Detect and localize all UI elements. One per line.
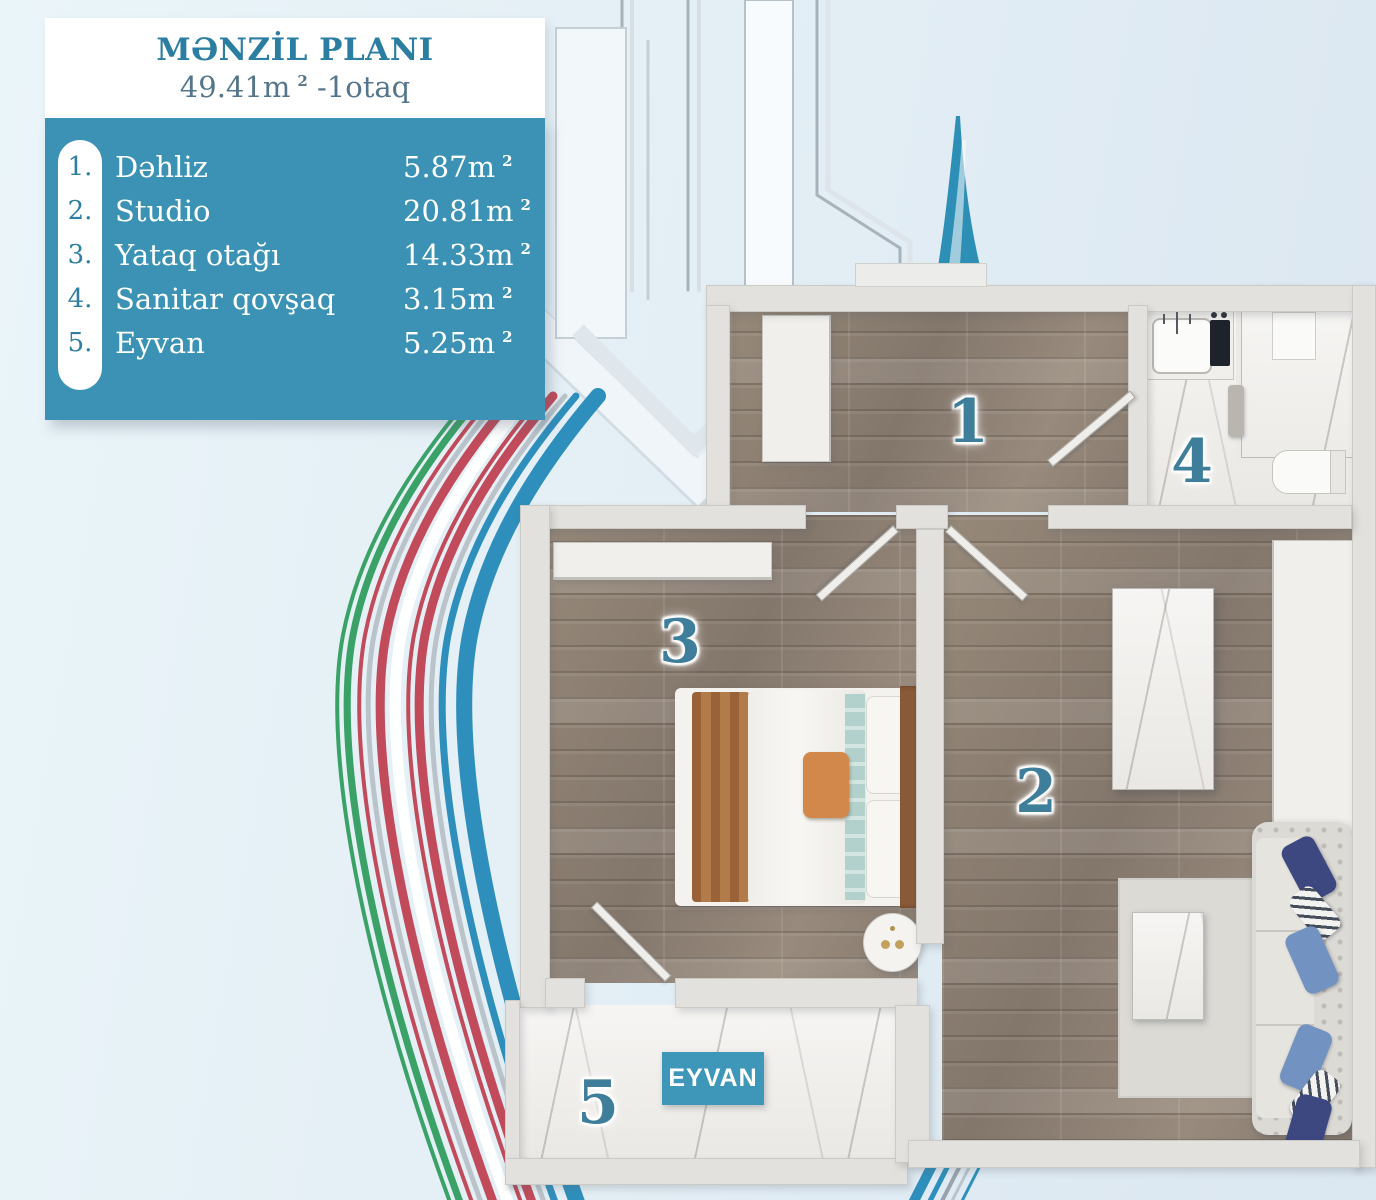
building-outline-graphic — [622, 0, 910, 290]
plan-title: MƏNZİL PLANI — [45, 32, 545, 68]
legend-row: 2. Studio 20.81m2 — [45, 189, 545, 233]
poster-canvas: 1 4 3 2 5 EYVAN MƏNZİL PLANI 49.41m2 -1o… — [0, 0, 1376, 1200]
total-area-sup: 2 — [297, 72, 307, 90]
legend-row-number: 5. — [58, 321, 102, 365]
legend-row-area: 5.25m2 — [403, 321, 513, 370]
wall-mid-left — [520, 505, 806, 529]
legend-row-number: 3. — [58, 233, 102, 277]
legend-row-area: 5.87m2 — [403, 145, 513, 194]
bath-faucet-handle — [1163, 314, 1165, 324]
legend-row-number: 1. — [58, 145, 102, 189]
wall-bedroom-left — [520, 505, 550, 1008]
shower-head-box — [1272, 312, 1316, 360]
legend-row-name: Studio — [115, 189, 211, 233]
legend-row-area: 3.15m2 — [403, 277, 513, 326]
bath-washer — [1210, 320, 1230, 366]
wall-bath-divider — [1128, 305, 1148, 512]
wall-bedroom-bottom-right — [675, 978, 918, 1008]
wall-balcony-bottom — [505, 1158, 908, 1185]
bath-towel — [1228, 385, 1244, 437]
room-label-hall: 1 — [947, 387, 989, 457]
total-area-value: 49.41m — [180, 70, 291, 104]
legend-row: 4. Sanitar qovşaq 3.15m2 — [45, 277, 545, 321]
wall-mid-t-cap — [896, 505, 948, 529]
legend-row: 5. Eyvan 5.25m2 — [45, 321, 545, 365]
legend-row-name: Sanitar qovşaq — [115, 277, 335, 321]
toilet-tank — [1330, 450, 1346, 494]
bath-sink-basin — [1152, 318, 1212, 374]
header-card: MƏNZİL PLANI 49.41m2 -1otaq — [45, 18, 545, 118]
balcony-tag: EYVAN — [662, 1052, 764, 1105]
coffee-table — [1132, 912, 1204, 1020]
legend-row: 3. Yataq otağı 14.33m2 — [45, 233, 545, 277]
legend-row: 1. Dəhliz 5.87m2 — [45, 145, 545, 189]
room-label-bedroom: 3 — [659, 607, 701, 677]
legend-row-name: Yataq otağı — [115, 233, 280, 277]
legend-row-area: 14.33m2 — [403, 233, 531, 282]
bedroom-wardrobe — [553, 542, 772, 580]
bath-washer-knobs — [1211, 312, 1217, 318]
room-label-balcony: 5 — [577, 1068, 619, 1138]
wall-mid-right — [1048, 505, 1352, 529]
wall-bedroom-studio-divider — [916, 529, 944, 944]
wall-top — [706, 285, 1376, 312]
wall-right — [1352, 285, 1376, 1168]
hall-closet — [762, 315, 831, 462]
plan-subtitle: 49.41m2 -1otaq — [45, 70, 545, 104]
bedside-decor — [881, 940, 890, 949]
kitchen-island — [1112, 588, 1214, 790]
wall-studio-bottom — [908, 1140, 1360, 1168]
legend-row-name: Dəhliz — [115, 145, 208, 189]
studio-cabinet — [1272, 540, 1355, 837]
legend-row-area: 20.81m2 — [403, 189, 531, 238]
legend-card: 1. Dəhliz 5.87m2 2. Studio 20.81m2 3. Ya… — [45, 118, 545, 420]
bedside-table — [863, 913, 922, 972]
bed-blanket — [692, 692, 750, 902]
legend-row-number: 4. — [58, 277, 102, 321]
wall-bedroom-bottom-left — [545, 978, 585, 1008]
bed-cushion — [803, 752, 849, 818]
legend-row-name: Eyvan — [115, 321, 205, 365]
bath-faucet — [1176, 312, 1178, 334]
room-label-bath: 4 — [1171, 427, 1213, 497]
wall-top-ledge — [855, 263, 987, 287]
room-count: -1otaq — [317, 70, 410, 104]
room-label-studio: 2 — [1015, 757, 1057, 827]
legend-row-number: 2. — [58, 189, 102, 233]
wall-hall-left — [706, 305, 730, 515]
